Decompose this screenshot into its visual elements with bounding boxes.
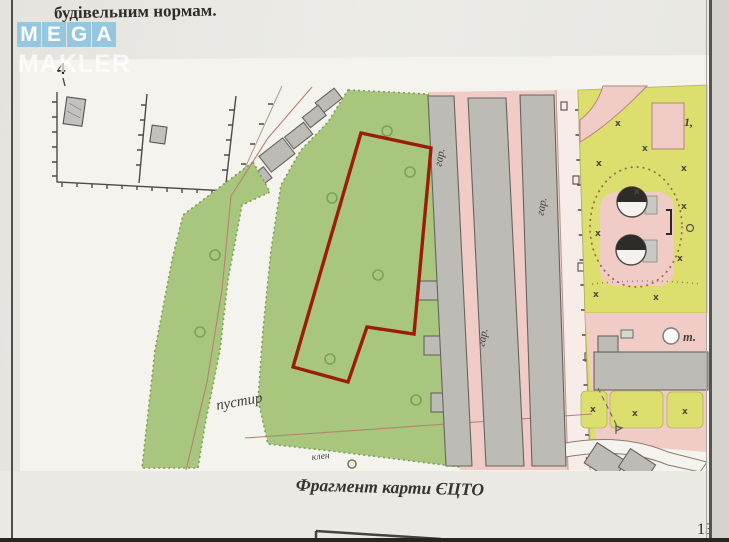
- svg-text:х: х: [681, 202, 687, 212]
- svg-text:х: х: [653, 293, 659, 303]
- building-long: [594, 352, 708, 390]
- svg-text:х: х: [682, 407, 688, 417]
- label-maple: клен: [311, 451, 330, 463]
- watermark-letter-tile: M: [17, 22, 41, 47]
- svg-text:х: х: [590, 405, 596, 415]
- bottom-scan-edge: [0, 538, 729, 542]
- svg-text:х: х: [632, 409, 638, 419]
- svg-text:х: х: [681, 164, 687, 174]
- svg-text:х: х: [615, 119, 621, 129]
- top-paragraph-text: будівельним нормам.: [54, 1, 217, 24]
- point-circle: [663, 328, 679, 344]
- sign-symbol: [621, 330, 633, 338]
- label-point: т.: [683, 330, 696, 344]
- svg-text:х: х: [634, 187, 640, 197]
- pink-block: [652, 103, 684, 149]
- watermark-letter-tile: E: [42, 22, 66, 47]
- watermark-letter-tile: A: [92, 22, 116, 47]
- svg-text:х: х: [596, 159, 602, 169]
- building-annex: [598, 336, 618, 352]
- right-inner-edge: [706, 0, 707, 542]
- right-paper-band: [712, 0, 729, 542]
- scanned-document-page: гар. гар. гар. пустир клен т. 1, х х х х…: [0, 0, 729, 542]
- watermark-letter-tile: G: [67, 22, 91, 47]
- svg-text:х: х: [595, 229, 601, 239]
- left-scan-edge: [11, 0, 14, 542]
- svg-text:х: х: [642, 144, 648, 154]
- svg-text:х: х: [677, 254, 683, 264]
- svg-text:х: х: [593, 290, 599, 300]
- label-house-number: 1,: [684, 115, 693, 129]
- map-figure: гар. гар. гар. пустир клен т. 1, х х х х…: [0, 0, 729, 542]
- yard-building: [150, 125, 167, 144]
- yard-building: [63, 97, 86, 126]
- watermark-word: MAKLER: [18, 50, 131, 79]
